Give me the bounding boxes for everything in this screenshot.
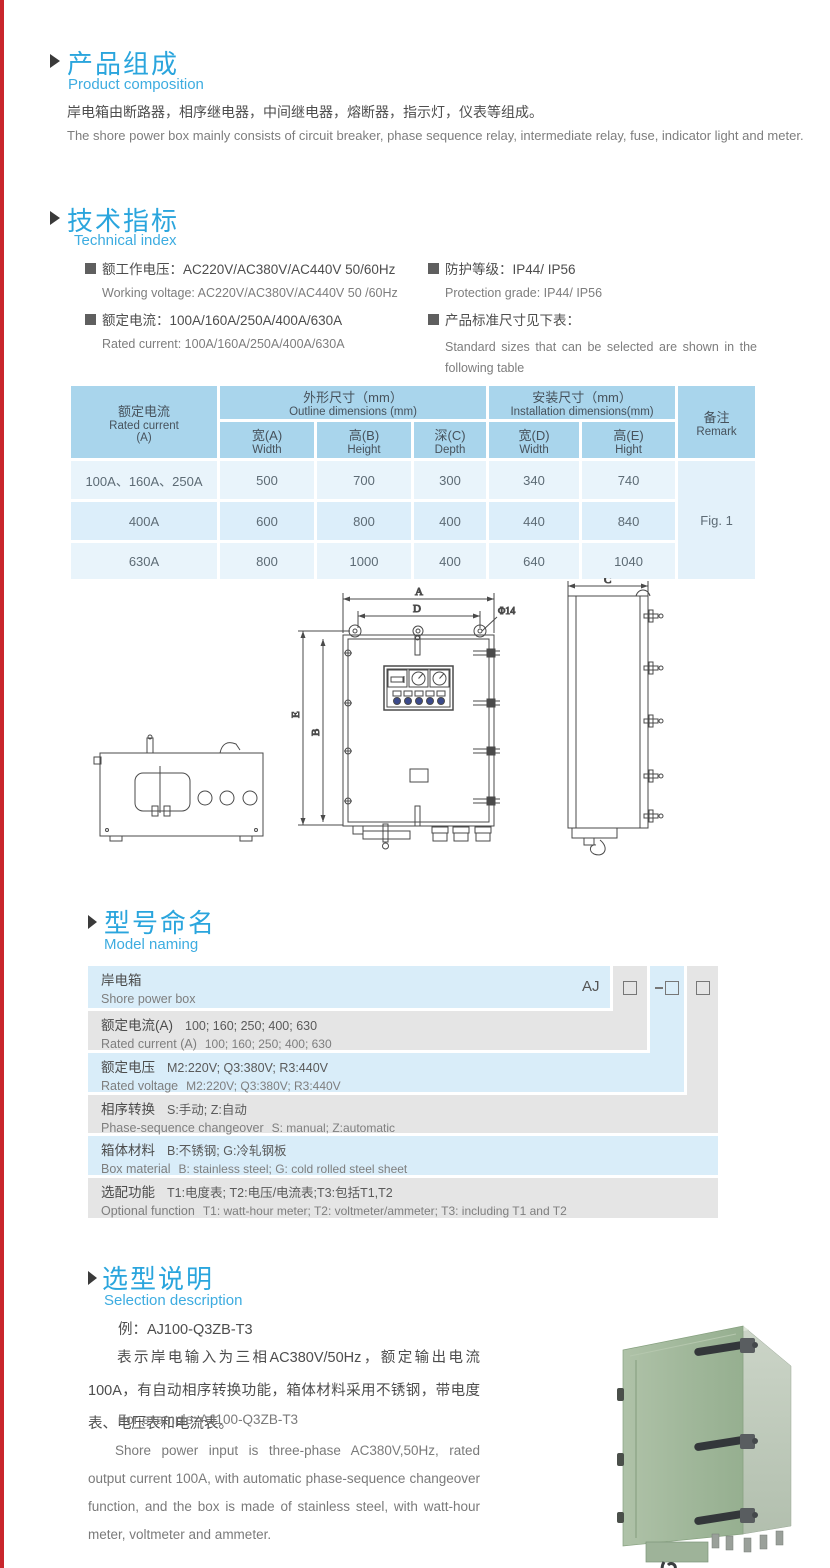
side-latches (644, 610, 663, 822)
cell-install-width: 640 (489, 543, 579, 579)
section-bullet-icon (50, 211, 60, 225)
spec-en-text: Rated current: 100A/160A/250A/400A/630A (102, 337, 398, 351)
cell-depth: 400 (414, 543, 486, 579)
spec-zh-text: 防护等级：IP44/ IP56 (445, 262, 576, 277)
cell-width: 500 (220, 461, 314, 499)
spec-zh-text: 额工作电压：AC220V/AC380V/AC440V 50/60Hz (102, 262, 395, 277)
spec-en-text: Standard sizes that can be selected are … (445, 337, 757, 379)
technical-title-en: Technical index (74, 232, 177, 249)
section-bullet-icon (88, 1271, 97, 1285)
col-header-width-d: 宽(D)Width (489, 422, 579, 458)
cell-current: 630A (71, 543, 217, 579)
selection-title-zh: 选型说明 (102, 1259, 214, 1296)
drawing-bottom-view (94, 735, 263, 841)
col-group-outline: 外形尺寸（mm） Outline dimensions (mm) (220, 386, 486, 419)
cell-install-hight: 740 (582, 461, 675, 499)
table-row: 630A 800 1000 400 640 1040 (71, 543, 755, 579)
spec-item: 额定电流：100A/160A/250A/400A/630A (85, 309, 398, 329)
model-row-rated-current: 额定电流(A)100; 160; 250; 400; 630 Rated cur… (88, 1011, 647, 1050)
cell-remark: Fig. 1 (678, 461, 755, 579)
svg-text:A: A (415, 586, 423, 598)
col-header-depth-c: 深(C)Depth (414, 422, 486, 458)
dimension-table: 额定电流 Rated current (A) 外形尺寸（mm） Outline … (68, 383, 758, 582)
product-photo (548, 1288, 830, 1568)
composition-body-zh: 岸电箱由断路器，相序继电器，中间继电器，熔断器，指示灯，仪表等组成。 (67, 102, 543, 122)
col-header-hight-e: 高(E)Hight (582, 422, 675, 458)
model-prefix: AJ (582, 978, 600, 995)
spec-en-text: Protection grade: IP44/ IP56 (445, 286, 758, 300)
col-header-remark: 备注 Remark (678, 386, 755, 458)
svg-text:D: D (413, 603, 421, 615)
cable-glands (432, 827, 491, 841)
cell-depth: 400 (414, 502, 486, 540)
cell-current: 400A (71, 502, 217, 540)
photo-side-panel (743, 1326, 791, 1534)
col-header-rated-current: 额定电流 Rated current (A) (71, 386, 217, 458)
spec-zh-text: 额定电流：100A/160A/250A/400A/630A (102, 313, 342, 328)
technical-drawing: A D Φ14 E B (60, 578, 770, 890)
cell-height: 1000 (317, 543, 411, 579)
catalog-page: 产品组成 Product composition 岸电箱由断路器，相序继电器，中… (0, 0, 830, 1568)
drawing-side-view: C (568, 578, 663, 855)
svg-text:B: B (310, 729, 322, 736)
square-bullet-icon (85, 263, 96, 274)
svg-text:Φ14: Φ14 (498, 606, 515, 617)
model-row-box-material: 箱体材料B:不锈钢; G:冷轧钢板 Box materialB: stainle… (88, 1136, 718, 1175)
section-bullet-icon (88, 915, 97, 929)
cell-height: 800 (317, 502, 411, 540)
svg-text:C: C (604, 578, 611, 586)
model-row-phase-sequence: 相序转换S:手动; Z:自动 Phase-sequence changeover… (88, 1095, 718, 1133)
model-row-rated-voltage: 额定电压M2:220V; Q3:380V; R3:440V Rated volt… (88, 1053, 684, 1092)
cell-install-hight: 840 (582, 502, 675, 540)
col-group-installation: 安装尺寸（mm） Installation dimensions(mm) (489, 386, 675, 419)
meter-panel (384, 666, 453, 710)
cell-install-width: 340 (489, 461, 579, 499)
svg-text:E: E (290, 711, 302, 718)
spec-list-left: 额工作电压：AC220V/AC380V/AC440V 50/60Hz Worki… (85, 258, 398, 351)
spec-en-text: Working voltage: AC220V/AC380V/AC440V 50… (102, 286, 398, 300)
selection-example-en: For example: AJ100-Q3ZB-T3 (118, 1412, 298, 1427)
model-row-shore-power-box: 岸电箱 Shore power box AJ (88, 966, 610, 1008)
section-bullet-icon (50, 54, 60, 68)
indicator-lamps (393, 691, 445, 705)
drawing-front-view: A D Φ14 E B (290, 586, 515, 849)
selection-example-zh: 例：AJ100-Q3ZB-T3 (118, 1318, 253, 1339)
cell-width: 800 (220, 543, 314, 579)
model-code-box (665, 981, 679, 995)
spec-item: 额工作电压：AC220V/AC380V/AC440V 50/60Hz (85, 258, 398, 278)
cell-current: 100A、160A、250A (71, 461, 217, 499)
spec-list-right: 防护等级：IP44/ IP56 Protection grade: IP44/ … (428, 258, 758, 379)
model-code-box (696, 981, 710, 995)
composition-body-en: The shore power box mainly consists of c… (67, 128, 804, 143)
col-header-width-a: 宽(A)Width (220, 422, 314, 458)
spec-item: 产品标准尺寸见下表： (428, 309, 758, 329)
model-naming-title-en: Model naming (104, 936, 198, 953)
latch-marks (473, 649, 500, 805)
model-naming-title-zh: 型号命名 (104, 903, 216, 940)
selection-paragraph-en: Shore power input is three-phase AC380V,… (88, 1437, 480, 1549)
page-left-accent-bar (0, 0, 4, 1568)
model-row-optional-function: 选配功能T1:电度表; T2:电压/电流表;T3:包括T1,T2 Optiona… (88, 1178, 718, 1218)
square-bullet-icon (85, 314, 96, 325)
cell-install-width: 440 (489, 502, 579, 540)
selection-title-en: Selection description (104, 1292, 242, 1309)
cell-install-hight: 1040 (582, 543, 675, 579)
table-row: 100A、160A、250A 500 700 300 340 740 Fig. … (71, 461, 755, 499)
cell-depth: 300 (414, 461, 486, 499)
spec-item: 防护等级：IP44/ IP56 (428, 258, 758, 278)
table-row: 400A 600 800 400 440 840 (71, 502, 755, 540)
square-bullet-icon (428, 263, 439, 274)
spec-zh-text: 产品标准尺寸见下表： (445, 313, 580, 328)
composition-title-en: Product composition (68, 76, 204, 93)
col-header-height-b: 高(B)Height (317, 422, 411, 458)
model-naming-table: 岸电箱 Shore power box AJ 额定电流(A)100; 160; … (88, 966, 718, 1218)
model-code-box (623, 981, 637, 995)
cell-height: 700 (317, 461, 411, 499)
cell-width: 600 (220, 502, 314, 540)
square-bullet-icon (428, 314, 439, 325)
model-code-dash (655, 987, 663, 989)
